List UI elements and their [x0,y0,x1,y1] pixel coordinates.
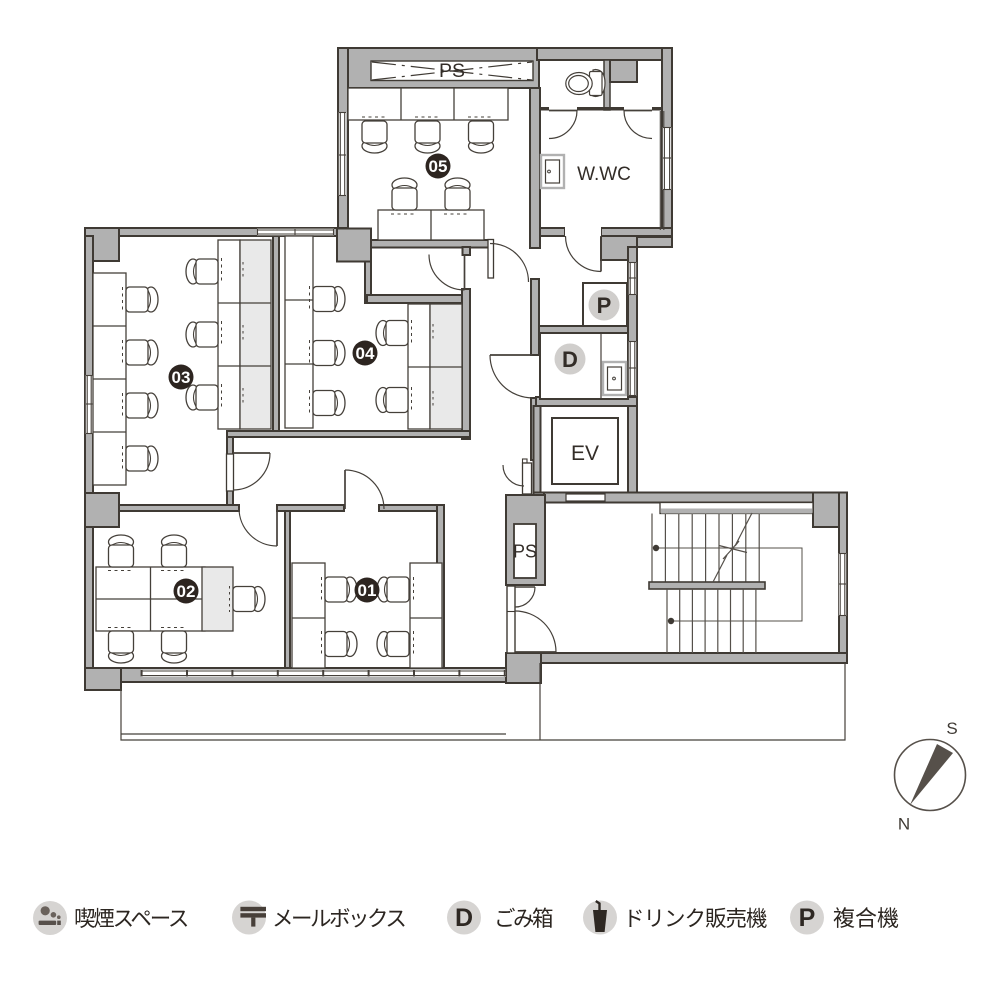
svg-text:ドリンク販売機: ドリンク販売機 [623,907,767,931]
svg-text:S: S [946,719,957,738]
svg-text:03: 03 [172,368,191,387]
svg-text:N: N [898,815,910,834]
svg-text:01: 01 [358,581,377,600]
svg-text:W.WC: W.WC [577,164,631,185]
svg-text:ごみ箱: ごみ箱 [494,907,553,931]
svg-text:04: 04 [356,344,375,363]
svg-text:PS: PS [439,60,465,82]
svg-text:D: D [455,904,473,932]
svg-text:D: D [562,347,578,372]
svg-text:02: 02 [177,582,196,601]
svg-text:P: P [597,293,612,318]
svg-text:複合機: 複合機 [833,906,899,931]
svg-text:EV: EV [571,442,599,465]
svg-text:メールボックス: メールボックス [272,907,405,931]
svg-text:喫煙スペース: 喫煙スペース [74,907,188,931]
svg-text:P: P [799,904,816,932]
svg-text:05: 05 [429,157,448,176]
svg-text:PS: PS [513,542,537,562]
